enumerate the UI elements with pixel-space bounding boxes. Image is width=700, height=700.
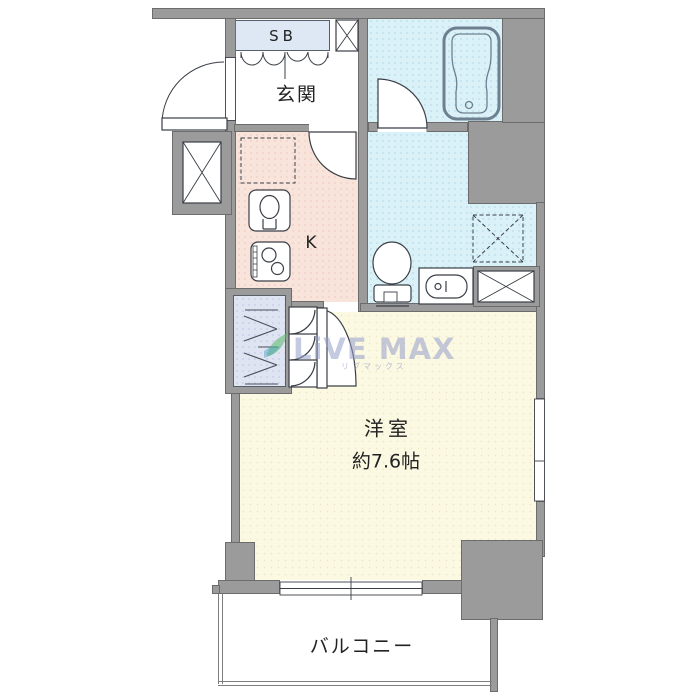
right-window bbox=[535, 399, 545, 501]
plan-linework bbox=[0, 0, 700, 700]
label-room-size: 約7.6帖 bbox=[352, 447, 420, 474]
closet-hanger bbox=[244, 310, 278, 384]
fridge-space bbox=[241, 138, 295, 183]
label-room-name: 洋室 bbox=[364, 413, 412, 442]
label-shoe-box: SB bbox=[269, 27, 297, 45]
pipe-shaft-top bbox=[336, 20, 358, 51]
pipe-shaft-bottom bbox=[478, 271, 534, 302]
label-kitchen: K bbox=[305, 233, 316, 253]
elevator-shaft bbox=[183, 142, 221, 203]
closet-doors bbox=[289, 307, 317, 387]
toilet bbox=[373, 242, 411, 306]
bathtub bbox=[444, 28, 499, 119]
balcony-window bbox=[280, 577, 422, 600]
genkan-kitchen-door bbox=[309, 124, 356, 180]
label-balcony: バルコニー bbox=[310, 632, 415, 659]
washer-space bbox=[473, 215, 523, 262]
entry-door bbox=[162, 58, 236, 131]
label-entrance: 玄関 bbox=[276, 80, 318, 107]
kitchen-sink bbox=[249, 190, 290, 231]
bathroom-door bbox=[378, 79, 428, 132]
shoebox-doors bbox=[241, 52, 328, 79]
stove bbox=[251, 242, 290, 281]
washbasin bbox=[419, 268, 473, 304]
floor-plan: SB 玄関 K 洋室 約7.6帖 バルコニー LiVE MAX リブマックス bbox=[0, 0, 700, 700]
main-room-door bbox=[317, 308, 356, 388]
